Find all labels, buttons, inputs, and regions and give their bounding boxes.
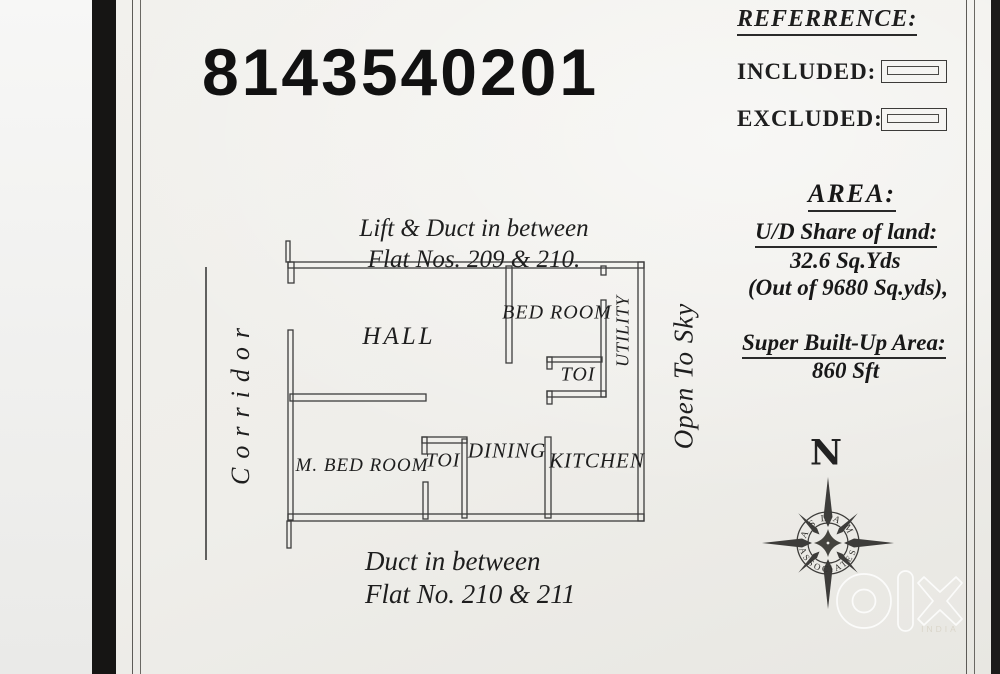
open-to-sky-label: Open To Sky [669,303,700,450]
compass-north-label: N [810,433,842,474]
top-note-line1: Lift & Duct in between [359,213,588,244]
room-label-bedroom: BED ROOM [502,302,612,325]
document-photo: ASLAM ASSOCIATES INDIA 8143540201 Lift &… [0,0,1000,674]
bottom-note: Duct in between Flat No. 210 & 211 [365,545,575,611]
top-note: Lift & Duct in between Flat Nos. 209 & 2… [359,213,588,275]
phone-number: 8143540201 [202,34,599,110]
built-up-value: 860 Sft [812,358,879,384]
included-label: INCLUDED: [737,59,876,85]
room-label-toi-lower: TOI [426,450,461,473]
room-label-toi-upper: TOI [561,364,596,387]
excluded-legend-box [881,108,947,131]
compass-rose-icon: ASLAM ASSOCIATES [762,477,894,609]
room-label-hall: HALL [362,323,435,351]
olx-watermark-icon: INDIA [837,571,962,634]
top-note-line2: Flat Nos. 209 & 210. [359,244,588,275]
ud-share-label: U/D Share of land: [755,219,937,248]
room-label-utility: UTILITY [613,295,634,367]
bottom-note-line2: Flat No. 210 & 211 [365,578,575,611]
built-up-label: Super Built-Up Area: [742,330,946,359]
watermark-country-text: INDIA [921,624,959,634]
ud-share-value: 32.6 Sq.Yds [790,248,901,274]
room-label-master-bedroom: M. BED ROOM [296,455,429,477]
excluded-label: EXCLUDED: [737,106,883,132]
area-title: AREA: [808,179,896,212]
floor-plan-walls [206,241,644,560]
corridor-label: Corridor [226,319,256,485]
room-label-dining: DINING [468,439,546,464]
reference-title: REFERRENCE: [737,6,917,36]
bottom-note-line1: Duct in between [365,545,575,578]
included-legend-box [881,60,947,83]
included-legend-box-inner [887,66,939,75]
room-label-kitchen: KITCHEN [549,449,645,474]
ud-share-out-of: (Out of 9680 Sq.yds), [748,275,948,301]
excluded-legend-box-inner [887,114,939,123]
